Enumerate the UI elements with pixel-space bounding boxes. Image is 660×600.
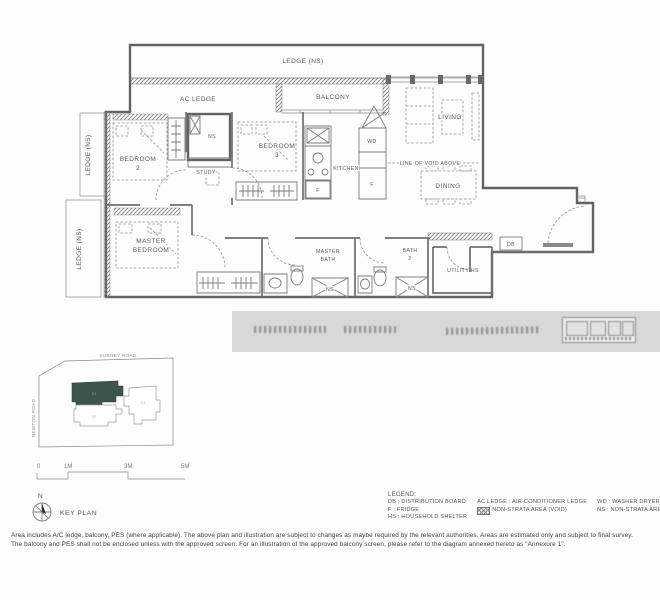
legend-item-db: DB : DISTRIBUTION BOARD bbox=[388, 499, 467, 507]
bath2-cistern bbox=[374, 267, 386, 272]
legend-item-non-strata-void: NON-STRATA AREA (VOID) bbox=[477, 507, 587, 515]
label-bedroom3-2: 3 bbox=[275, 152, 279, 159]
label-master-bedroom-2: BEDROOM bbox=[133, 247, 169, 254]
label-ac-ledge: AC LEDGE bbox=[180, 96, 216, 103]
legend-item-hs: HS : HOUSEHOLD SHELTER bbox=[388, 514, 467, 522]
label-bedroom2-1: BEDROOM bbox=[120, 156, 156, 163]
block-01 bbox=[72, 381, 123, 405]
block-02 bbox=[74, 405, 122, 426]
block-03 bbox=[124, 386, 160, 424]
ledge-left-lower-outline bbox=[66, 200, 101, 297]
watermark-smudge bbox=[446, 326, 541, 335]
scale-tick-1m: 1M bbox=[64, 464, 72, 470]
bath2-basin bbox=[361, 279, 370, 289]
label-study: STUDY bbox=[196, 170, 216, 176]
watermark-smudge bbox=[254, 326, 326, 333]
label-master-bedroom-1: MASTER bbox=[136, 238, 166, 245]
mbath-vanity bbox=[264, 274, 287, 293]
bedroom2-door-arc bbox=[156, 170, 186, 200]
scale-bar-line bbox=[37, 472, 185, 479]
master-bed-pillows bbox=[119, 224, 161, 233]
legend-item-ac-ledge: AC LEDGE : AIR-CONDITIONER LEDGE bbox=[477, 499, 587, 507]
bed2-headwall-hatch bbox=[113, 114, 168, 120]
disclaimer-line-2: The balcony and PES shall not be enclose… bbox=[11, 540, 653, 549]
entry-door-leaf bbox=[543, 243, 573, 247]
label-master-bath-1: MASTER bbox=[316, 249, 340, 255]
road-label-left: NEWTON ROAD bbox=[31, 399, 36, 438]
scale-bar: 0 1M 3M 5M bbox=[30, 458, 200, 484]
watermark-logo bbox=[562, 317, 636, 343]
label-bath2-1: BATH bbox=[402, 248, 417, 254]
corridor-hatch bbox=[428, 233, 492, 240]
legend-column-1: DB : DISTRIBUTION BOARD F : FRIDGE HS : … bbox=[388, 499, 467, 522]
label-living: LIVING bbox=[438, 114, 462, 121]
legend-column-2: AC LEDGE : AIR-CONDITIONER LEDGE NON-STR… bbox=[477, 499, 587, 522]
watermark-logo-box bbox=[608, 321, 621, 336]
label-kitchen: KITCHEN bbox=[333, 166, 359, 172]
balcony-sliding-door bbox=[282, 110, 383, 113]
label-wd: WD bbox=[367, 139, 376, 145]
legend-title: LEGEND: bbox=[388, 492, 656, 498]
key-plan-block-03-label: 03 bbox=[141, 400, 146, 405]
master-door-arc bbox=[192, 235, 225, 268]
floor-plan-drawing: LEDGE (NS) AC LEDGE BALCONY LIVING LEDGE… bbox=[0, 0, 660, 315]
key-plan-block-01-label: 01 bbox=[92, 391, 97, 396]
label-fridge-kitchen: F bbox=[316, 188, 320, 194]
watermark-banner bbox=[232, 311, 660, 352]
watermark-smudge bbox=[344, 326, 396, 333]
wall-hatch-balcony-divider bbox=[276, 84, 282, 112]
label-ledge-top: LEDGE (NS) bbox=[282, 58, 323, 65]
wall-hatch-top bbox=[130, 78, 386, 84]
kitchen-stove bbox=[308, 153, 328, 175]
disclaimer: Area includes A/C ledge, balcony, PES (w… bbox=[11, 531, 653, 549]
label-master-bath-2: BATH bbox=[320, 257, 335, 263]
kitchen-sink bbox=[307, 128, 329, 143]
shelter-shaft bbox=[190, 116, 200, 134]
floor-plan-sheet: LEDGE (NS) AC LEDGE BALCONY LIVING LEDGE… bbox=[0, 0, 660, 600]
label-ledge-left-lower: LEDGE (NS) bbox=[76, 228, 83, 269]
legend-item-fridge: F : FRIDGE bbox=[388, 507, 467, 515]
mbath-cistern bbox=[291, 266, 303, 271]
key-plan-map: 01 02 03 SURREY ROAD NEWTON ROAD bbox=[30, 352, 190, 457]
wardrobe3 bbox=[236, 182, 297, 200]
window-columns bbox=[386, 75, 483, 84]
bed2-diagonal bbox=[141, 130, 164, 153]
legend: LEGEND: DB : DISTRIBUTION BOARD F : FRID… bbox=[388, 492, 656, 522]
watermark-logo-box bbox=[590, 321, 606, 336]
label-ns-shelter: NS bbox=[208, 134, 216, 140]
label-utility: UTILITY-HS bbox=[447, 268, 479, 274]
balcony-bifold-door bbox=[362, 106, 386, 128]
master-wardrobe bbox=[197, 272, 260, 293]
label-dining: DINING bbox=[435, 183, 460, 190]
watermark-logo-text-smudge bbox=[565, 337, 631, 340]
ledge-left-upper-outline bbox=[80, 113, 106, 196]
watermark-logo-box bbox=[566, 321, 588, 336]
legend-column-3: WD : WASHER DRYER NS : NON-STRATA AREA bbox=[597, 499, 660, 522]
mbath-basin bbox=[269, 278, 281, 288]
scale-tick-0: 0 bbox=[37, 464, 41, 470]
bath2-door-arc bbox=[360, 238, 385, 263]
label-db: DB bbox=[507, 242, 515, 248]
label-ns-master-bath: NS bbox=[326, 287, 334, 293]
key-plan-block-02-label: 02 bbox=[92, 414, 97, 419]
master-headwall-hatch bbox=[114, 208, 180, 215]
label-ns-bath2: NS bbox=[408, 286, 416, 292]
label-fridge-column: F bbox=[370, 182, 374, 188]
legend-item-ns: NS : NON-STRATA AREA bbox=[597, 507, 660, 515]
compass-block: N KEY PLAN bbox=[30, 488, 170, 528]
north-label: N bbox=[38, 493, 43, 500]
master-bed bbox=[116, 222, 178, 268]
watermark-logo-box bbox=[622, 321, 634, 336]
entry-door-arc bbox=[548, 206, 586, 243]
label-bath2-2: 2 bbox=[408, 256, 411, 262]
bed2-pillows bbox=[116, 126, 153, 136]
wardrobe2 bbox=[168, 118, 185, 160]
compass-icon bbox=[33, 503, 51, 521]
utility-door-arc bbox=[447, 247, 470, 270]
legend-item-wd: WD : WASHER DRYER bbox=[597, 499, 660, 507]
road-label-top: SURREY ROAD bbox=[100, 353, 137, 358]
label-balcony: BALCONY bbox=[316, 94, 350, 101]
non-strata-hatch-icon bbox=[477, 507, 490, 515]
bedroom3-door-arc bbox=[232, 168, 262, 198]
label-ledge-left-upper: LEDGE (NS) bbox=[85, 134, 92, 175]
scale-tick-3m: 3M bbox=[124, 464, 132, 470]
tv-console bbox=[472, 93, 479, 140]
label-bedroom2-2: 2 bbox=[136, 165, 140, 172]
legend-item-non-strata-void-label: NON-STRATA AREA (VOID) bbox=[492, 507, 567, 515]
mbath-door-arc bbox=[268, 238, 295, 265]
interior-walls bbox=[106, 112, 593, 297]
scale-tick-5m: 5M bbox=[181, 464, 189, 470]
disclaimer-line-1: Area includes A/C ledge, balcony, PES (w… bbox=[11, 531, 653, 540]
label-bedroom3-1: BEDROOM bbox=[259, 143, 295, 150]
bed3-pillows bbox=[241, 125, 267, 134]
sofa bbox=[406, 88, 433, 143]
key-plan-caption: KEY PLAN bbox=[60, 510, 97, 517]
label-line-of-void: LINE OF VOID ABOVE bbox=[400, 161, 461, 167]
